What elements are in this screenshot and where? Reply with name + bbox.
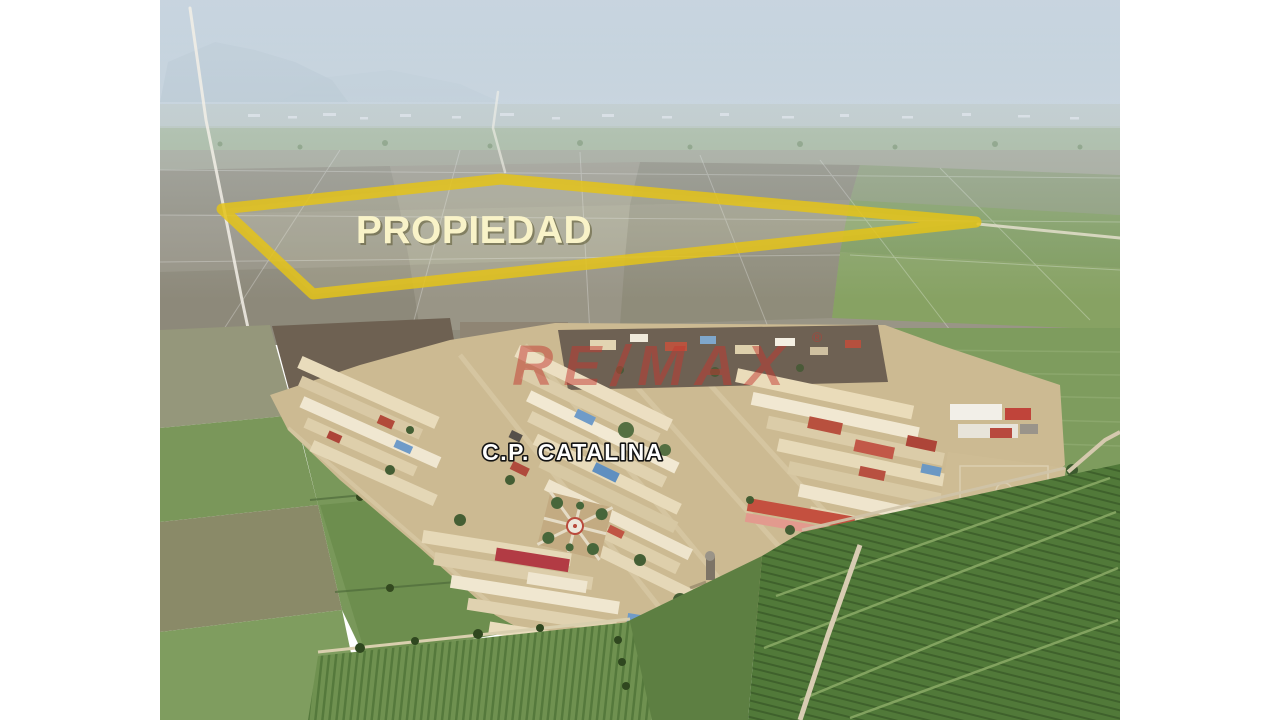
registered-trademark-symbol: ® <box>812 329 823 345</box>
property-label: PROPIEDAD PROPIEDAD <box>356 209 594 254</box>
page-background: PROPIEDAD PROPIEDAD <box>0 0 1280 720</box>
village-label: C.P. CATALINA <box>482 439 664 465</box>
aerial-photo: PROPIEDAD PROPIEDAD <box>160 0 1120 720</box>
remax-watermark: RE/MAX ® <box>512 329 823 398</box>
svg-text:PROPIEDAD: PROPIEDAD <box>356 209 592 252</box>
landscape-svg: PROPIEDAD PROPIEDAD <box>160 0 1120 720</box>
svg-text:RE/MAX: RE/MAX <box>512 334 794 398</box>
